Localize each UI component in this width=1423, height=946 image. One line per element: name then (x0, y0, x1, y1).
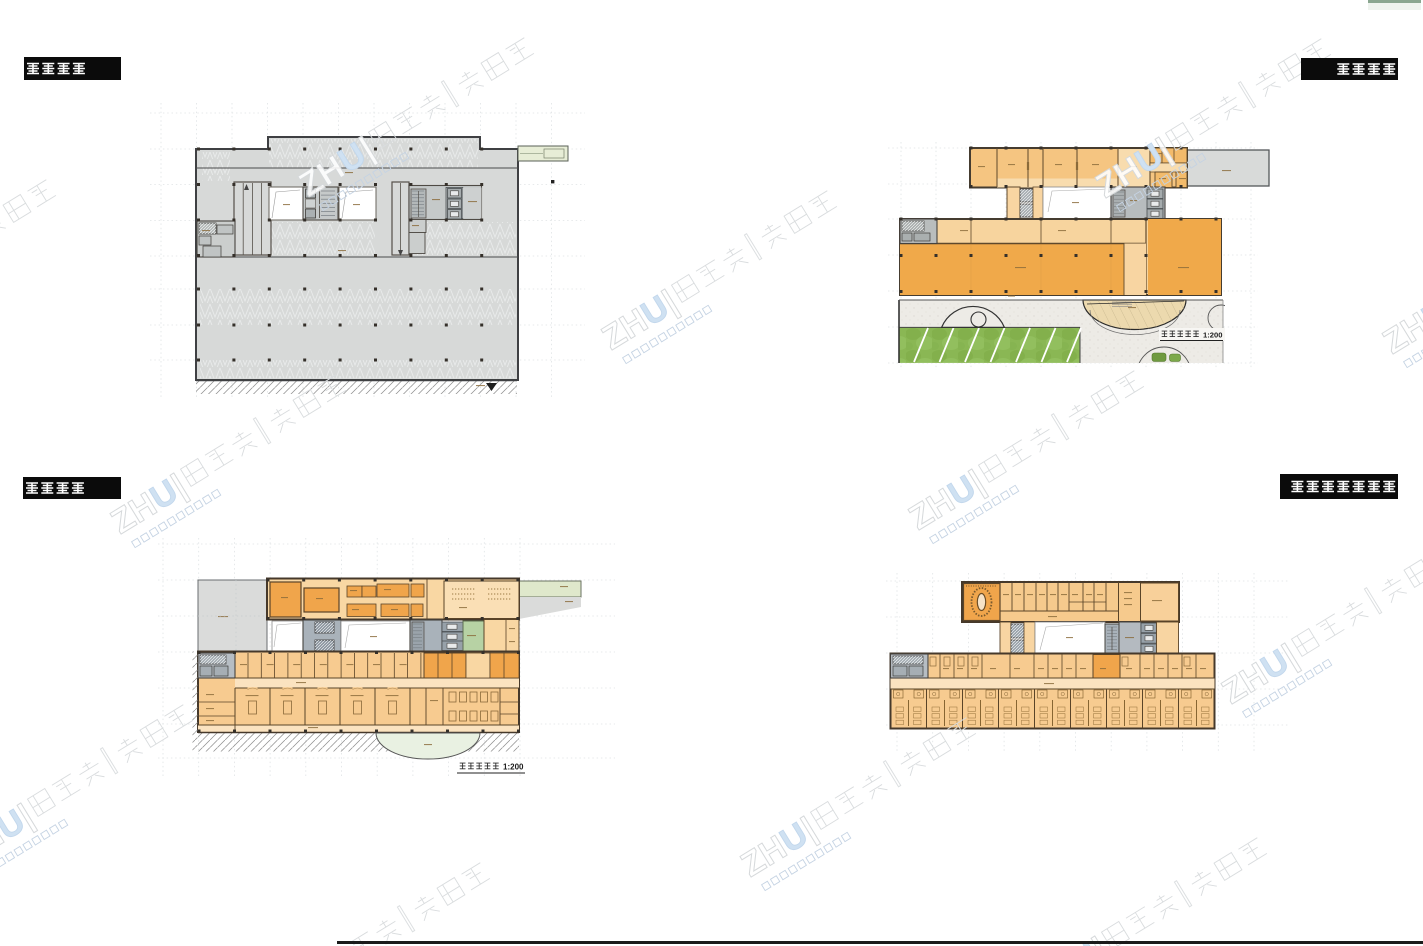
svg-text:1:200: 1:200 (1203, 330, 1222, 339)
svg-text:1:200: 1:200 (503, 763, 524, 772)
